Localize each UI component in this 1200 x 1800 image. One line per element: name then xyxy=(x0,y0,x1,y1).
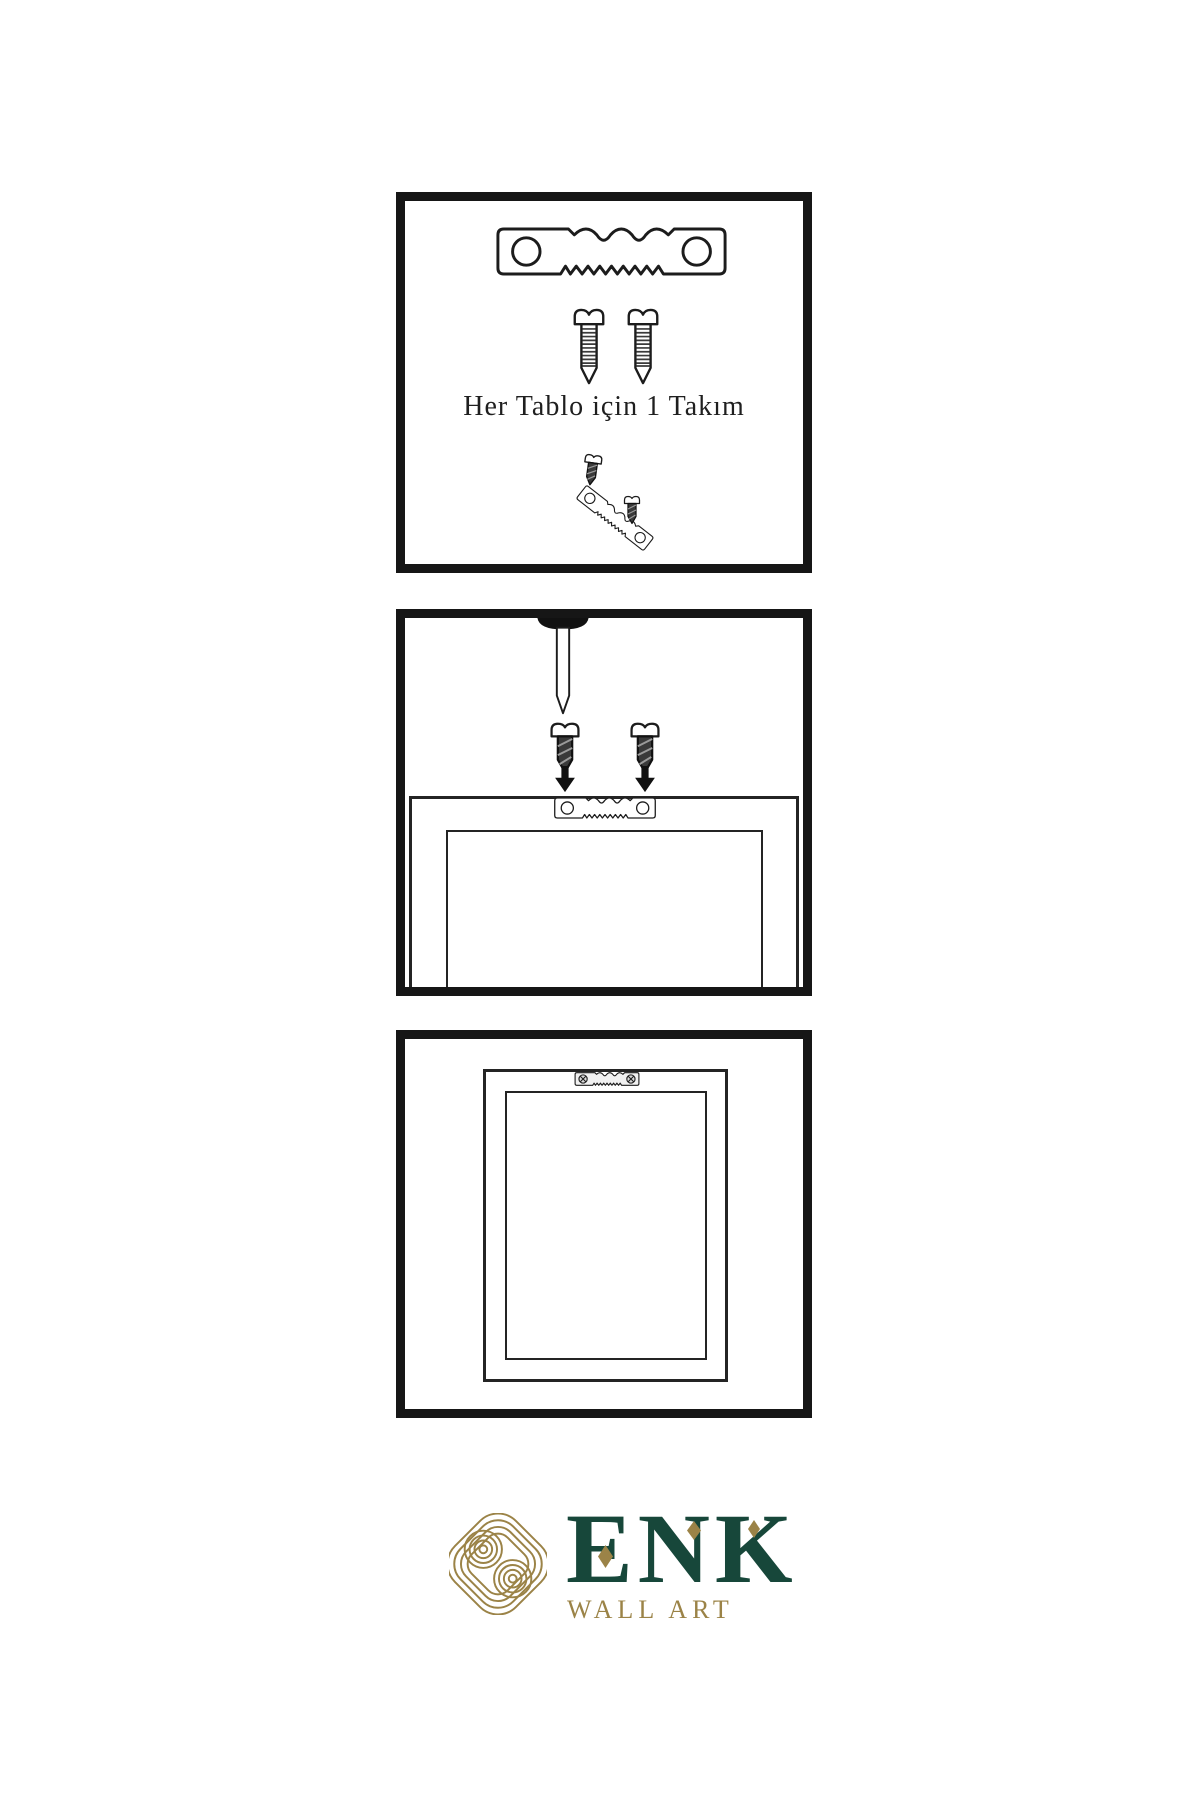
sawtooth-hanger-icon xyxy=(494,223,729,280)
frame-back-inner-outline xyxy=(446,830,763,996)
mounted-sawtooth-hanger-icon xyxy=(574,1069,640,1089)
screw-icon xyxy=(570,307,608,387)
step-panel-hang-frame xyxy=(396,1030,812,1418)
nail-icon xyxy=(536,618,590,715)
installation-infographic: Her Tablo için 1 Takım ENK WALL ART xyxy=(0,0,1200,1800)
step-panel-hardware-kit: Her Tablo için 1 Takım xyxy=(396,192,812,573)
screw-icon xyxy=(624,307,662,387)
brand-subtitle: WALL ART xyxy=(567,1597,734,1623)
brand-name: ENK xyxy=(566,1499,798,1599)
kit-caption: Her Tablo için 1 Takım xyxy=(405,391,803,423)
screw-icon xyxy=(622,492,642,528)
step-panel-attach-hanger xyxy=(396,609,812,996)
hanging-frame-inner-outline xyxy=(505,1091,707,1360)
down-arrow-icon xyxy=(554,766,576,793)
interlaced-knot-icon xyxy=(449,1512,547,1616)
screw-icon xyxy=(578,450,605,491)
tilted-sawtooth-hanger-icon xyxy=(574,482,657,554)
down-arrow-icon xyxy=(634,766,656,793)
sawtooth-hanger-icon xyxy=(553,794,657,822)
